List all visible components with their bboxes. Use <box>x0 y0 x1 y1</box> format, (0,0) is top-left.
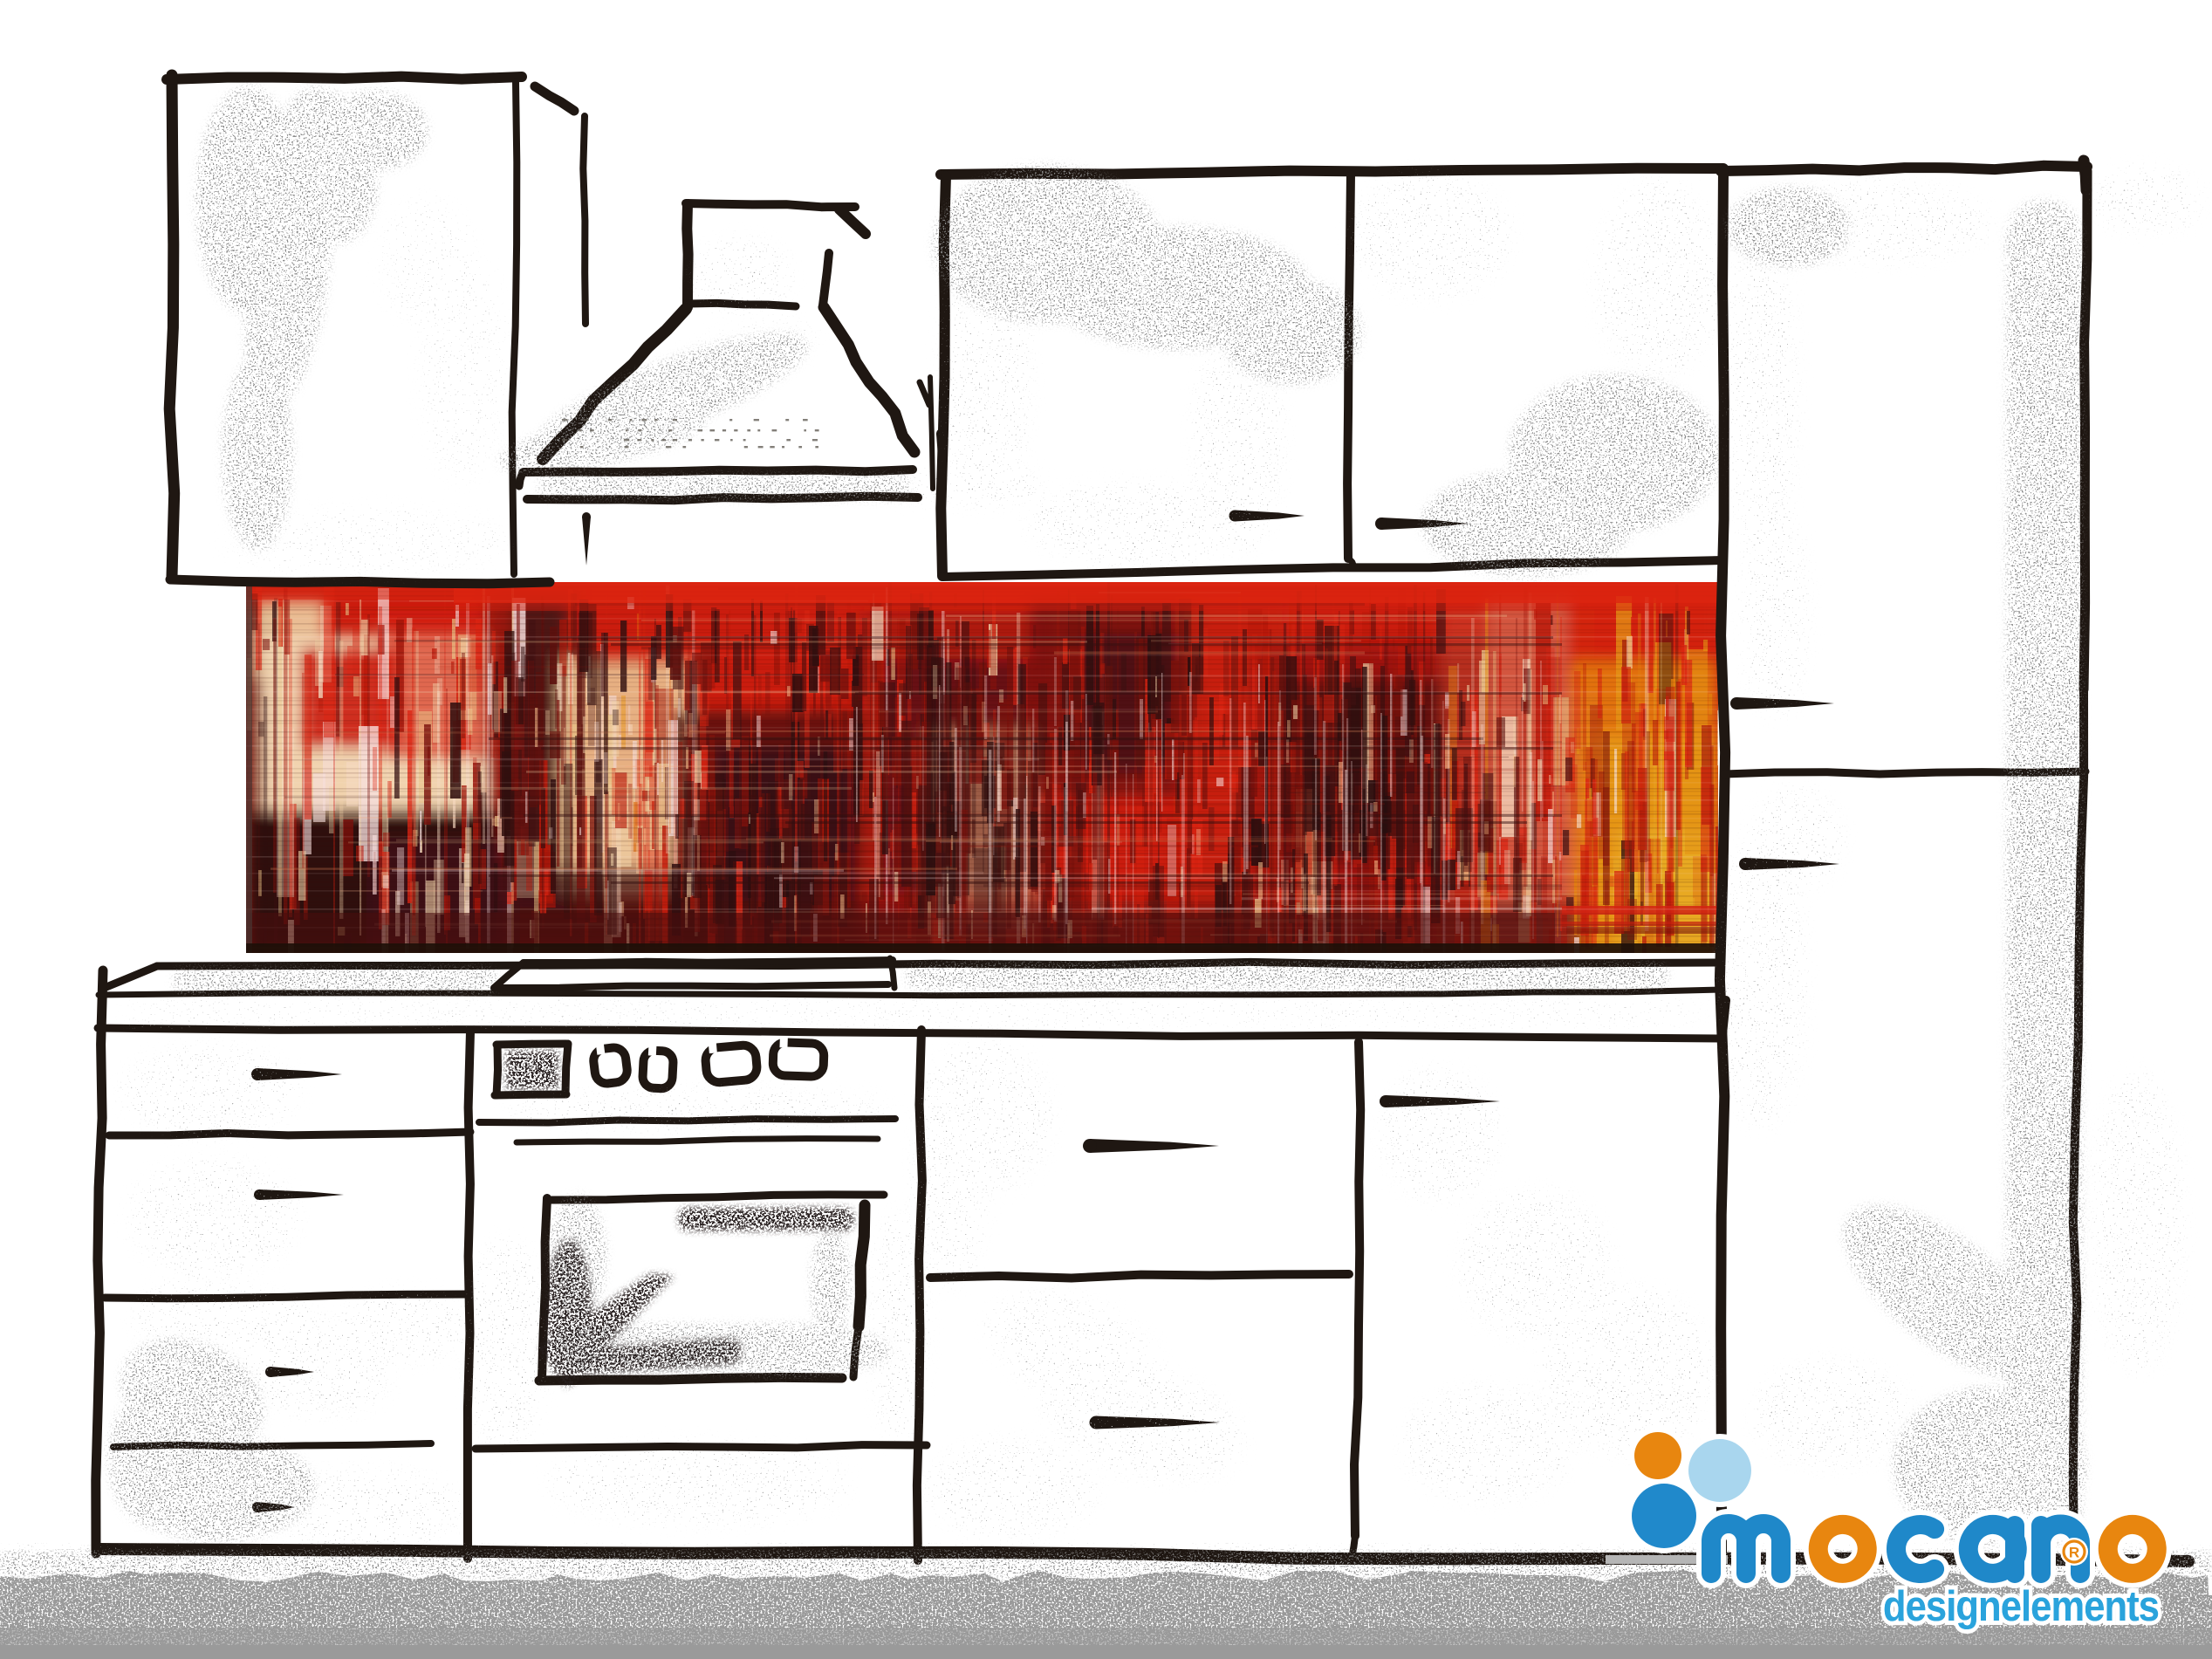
svg-text:R: R <box>2069 1545 2079 1561</box>
svg-text:designelements: designelements <box>1883 1583 2159 1630</box>
